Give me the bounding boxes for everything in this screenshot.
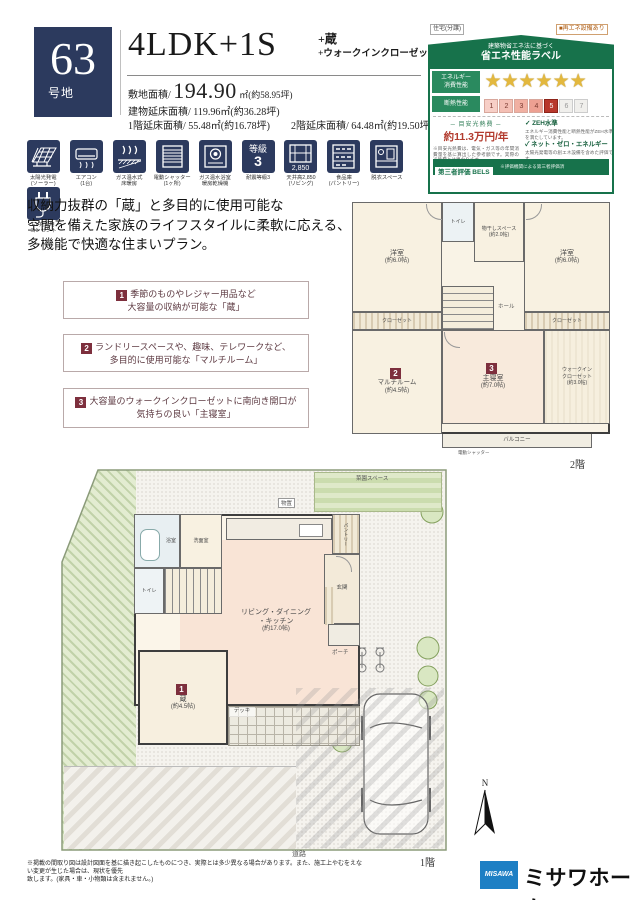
scale-3: 3 — [514, 99, 528, 113]
disclaimer-line1: ※掲載の間取り図は設計図面を基に描き起こしたものにつき、実際とは多少異なる場合が… — [27, 860, 367, 876]
room-toilet-2f: トイレ — [442, 202, 474, 242]
point-box-3: 3大容量のウォークインクローゼットに南向き開口が 気持ちの良い「主寝室」 — [63, 388, 309, 428]
scale-7: 7 — [574, 99, 588, 113]
zeh-check: ✓ ZEH水準 — [525, 120, 613, 127]
room-bedroom2: 洋室(約6.0帖) — [524, 202, 610, 312]
description-line: 多機能で快適な住まいプラン。 — [27, 235, 351, 255]
entrance-porch — [328, 624, 360, 646]
site-area-unit: ㎡(約58.95坪) — [239, 90, 292, 100]
point-3-badge: 3 — [75, 397, 86, 408]
floor2-area-value: 64.48㎡(約19.50坪) — [351, 121, 433, 132]
room-washroom: 洗面室 — [180, 514, 222, 568]
floor1-plan: 菜園スペース 物置 浴室 洗面室 トイレ パントリー リビング・ダイニング ・キ… — [56, 466, 452, 856]
feature-ceiling: 2,850 天井高2,850(リビング) — [282, 140, 321, 187]
vegetable-garden-label: 菜園スペース — [356, 474, 388, 482]
room-bath: 浴室 — [134, 514, 180, 568]
disclaimer-line2: 致します。(家具・車・小物類は含まれません。) — [27, 876, 367, 884]
flyer-page: 63 号地 4LDK+1S +蔵 +ウォークインクローゼット+パントリー 敷地面… — [0, 0, 636, 900]
point-3-line1: 大容量のウォークインクローゼットに南向き開口が — [89, 396, 296, 406]
bedroom2-closet: クローゼット — [524, 312, 610, 330]
energy-consumption-label: エネルギー 消費性能 — [432, 71, 480, 93]
room-pantry: パントリー — [332, 514, 360, 554]
cost-label: ─ 目安光熱費 ─ — [433, 119, 519, 128]
room-bedroom1: 洋室(約6.0帖) — [352, 202, 442, 312]
cost-column: ─ 目安光熱費 ─ 約11.3万円/年 ※目安光熱費は、電気・ガス等の年間消費量… — [433, 119, 519, 163]
lot-number-box: 63 号地 — [34, 27, 112, 117]
scale-2: 2 — [499, 99, 513, 113]
plan-description: 収納力抜群の「蔵」と多目的に使用可能な 空間を備えた家族のライフスタイルに柔軟に… — [27, 196, 351, 255]
pantry-icon — [327, 140, 360, 173]
energy-tag-left: 住宅(分譲) — [430, 24, 464, 35]
description-line: 空間を備えた家族のライフスタイルに柔軟に応える、 — [27, 216, 351, 236]
point-2-line2: 多目的に使用可能な「マルチルーム」 — [64, 354, 308, 367]
building-area-line: 建物延床面積/ 119.96㎡(約36.28坪) — [128, 103, 280, 118]
lot-number: 63 — [34, 33, 112, 85]
zeh-note: エネルギー消費性能と断熱性能がZEH水準を満たしています。 — [525, 129, 613, 140]
point-2-line1: ランドリースペースや、趣味、テレワークなど、 — [95, 342, 291, 352]
porch-label: ポーチ — [332, 648, 349, 656]
star-rating: ★★★★★★ — [484, 72, 586, 92]
shoe-closet — [325, 587, 334, 625]
site-area-value: 194.90 — [173, 78, 237, 103]
bath-dryer-icon — [199, 140, 232, 173]
scale-6: 6 — [559, 99, 573, 113]
seismic-grade-icon: 等級 3 — [242, 140, 275, 173]
room-walk-in-closet: ウォークインクローゼット(約3.0帖) — [544, 330, 610, 424]
dressing-space-icon — [370, 140, 403, 173]
nze-check: ✓ ネット・ゼロ・エネルギー — [525, 141, 613, 148]
floor-heating-icon — [113, 140, 146, 173]
room-kura: 1蔵(約4.5帖) — [138, 650, 228, 745]
point-box-1: 1季節のものやレジャー用品など 大容量の収納が可能な「蔵」 — [63, 281, 309, 319]
feature-bathdryer: ガス温水浴室暖房乾燥機 — [196, 140, 235, 187]
header-divider — [120, 30, 121, 115]
energy-detail-columns: ─ 目安光熱費 ─ 約11.3万円/年 ※目安光熱費は、電気・ガス等の年間消費量… — [433, 116, 609, 175]
solar-panel-icon — [27, 140, 60, 173]
floor2-plan: 洋室(約6.0帖) クローゼット トイレ 物干しスペース(約2.0帖) 洋室(約… — [348, 190, 616, 460]
svg-text:2,850: 2,850 — [292, 165, 310, 172]
disclaimer: ※掲載の間取り図は設計図面を基に描き起こしたものにつき、実際とは多少異なる場合が… — [27, 860, 367, 884]
kitchen-counter — [226, 518, 332, 540]
feature-floorheat: ガス温水式床暖房 — [110, 140, 149, 187]
air-conditioner-icon — [70, 140, 103, 173]
insulation-scale: 1234567 — [484, 95, 589, 113]
scale-4: 4 — [529, 99, 543, 113]
compass-icon — [472, 788, 498, 838]
hall-label-2f: ホール — [498, 302, 515, 310]
shed-label: 物置 — [278, 498, 295, 508]
room-toilet-1f: トイレ — [134, 568, 164, 614]
floor1-area-value: 55.48㎡(約16.78坪) — [188, 121, 270, 132]
energy-label-body: エネルギー 消費性能 ★★★★★★ 断熱性能 1234567 ─ 目安光熱費 ─… — [428, 67, 614, 194]
point-1-line2: 大容量の収納が可能な「蔵」 — [64, 301, 308, 314]
driveway — [64, 766, 296, 849]
point-1-line1: 季節のものやレジャー用品など — [130, 289, 256, 299]
road-label: 道路 — [292, 849, 306, 859]
floor2-area-label: 2階延床面積/ — [291, 121, 349, 132]
floor1-label: 1階 — [420, 854, 435, 869]
floor2-label: 2階 — [570, 456, 585, 471]
north-label: N — [472, 778, 498, 788]
point-box-2: 2ランドリースペースや、趣味、テレワークなど、 多目的に使用可能な「マルチルーム… — [63, 334, 309, 372]
parking-space — [296, 688, 444, 848]
floor-areas-line: 1階延床面積/ 55.48㎡(約16.78坪) 2階延床面積/ 64.48㎡(約… — [128, 117, 433, 132]
cost-value: 約11.3万円/年 — [433, 129, 519, 144]
stairs-2f — [442, 286, 494, 330]
bels-footer: 第三者評価 BELS ※評価機関による第三者評価済 — [433, 159, 609, 175]
insulation-label: 断熱性能 — [432, 96, 480, 112]
site-area-line: 敷地面積/ 194.90 ㎡(約58.95坪) — [128, 78, 293, 104]
insulation-row: 断熱性能 1234567 — [432, 95, 610, 113]
floor1-area-label: 1階延床面積/ — [128, 121, 186, 132]
energy-header-title: 省エネ性能ラベル — [428, 51, 614, 62]
energy-consumption-row: エネルギー 消費性能 ★★★★★★ — [432, 71, 610, 93]
energy-header-small: 建築物省エネ法に基づく — [428, 44, 614, 51]
feature-seismic: 等級 3 耐震等級3 — [239, 140, 278, 181]
high-ceiling-icon: 2,850 — [284, 140, 317, 173]
feature-pantry: 食品庫(パントリー) — [325, 140, 364, 187]
title-rule — [127, 75, 421, 76]
bels-note: ※評価機関による第三者評価済 — [500, 161, 564, 172]
feature-solar: 太陽光発電(ソーラー) — [24, 140, 63, 187]
balcony-shutter-note: 電動シャッター — [458, 450, 490, 456]
room-multiroom: 2マルチルーム(約4.5帖) — [352, 330, 442, 434]
bels-badge: 第三者評価 BELS — [435, 167, 493, 178]
energy-tag-renewable: ■再エネ設備あり — [556, 24, 608, 35]
plan-title: 4LDK+1S — [128, 26, 277, 64]
feature-shutter: 電動シャッター(1ヶ所) — [153, 140, 192, 187]
point-3-line2: 気持ちの良い「主寝室」 — [64, 408, 308, 421]
site-area-label: 敷地面積/ — [128, 90, 171, 101]
feature-aircon: エアコン(1台) — [67, 140, 106, 187]
scale-1: 1 — [484, 99, 498, 113]
kitchen-sink — [299, 524, 323, 537]
balcony: バルコニー — [442, 434, 592, 448]
misawa-logo-text: ミサワホーム — [524, 862, 636, 900]
electric-shutter-icon — [156, 140, 189, 173]
description-line: 収納力抜群の「蔵」と多目的に使用可能な — [27, 196, 351, 216]
room-drying-space: 物干しスペース(約2.0帖) — [474, 202, 524, 262]
scale-5-selected: 5 — [544, 99, 558, 113]
point-1-badge: 1 — [116, 290, 127, 301]
check-column: ✓ ZEH水準 エネルギー消費性能と断熱性能がZEH水準を満たしています。 ✓ … — [525, 119, 613, 161]
lot-suffix: 号地 — [34, 87, 112, 99]
plan-sub-kura: +蔵 — [318, 32, 337, 46]
north-arrow: N — [472, 778, 498, 843]
misawa-logo-mark: MISAWA — [480, 861, 518, 889]
bedroom1-closet: クローゼット — [352, 312, 442, 330]
feature-dressing: 脱衣スペース — [368, 140, 407, 181]
point-2-badge: 2 — [81, 343, 92, 354]
